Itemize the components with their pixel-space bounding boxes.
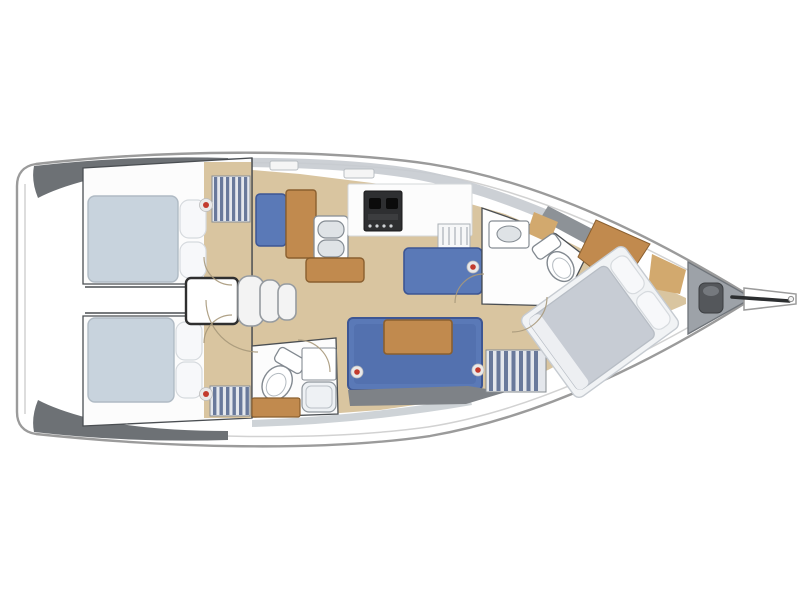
deck-hatch-1 <box>270 161 298 170</box>
aft-cabin-port <box>83 158 252 284</box>
hatch-marker <box>200 388 213 401</box>
galley-island <box>306 258 364 282</box>
bowsprit-tip <box>788 296 793 301</box>
yacht-floor-plan <box>0 0 800 600</box>
aft-cabin-starboard-mattress <box>88 318 174 402</box>
aft-cabin-starboard <box>83 316 252 426</box>
hatch-marker <box>200 199 213 212</box>
deck-hatch-2 <box>344 169 374 178</box>
chart-table <box>286 190 316 258</box>
hatch-marker <box>467 261 479 273</box>
companionway-steps <box>238 276 296 326</box>
yacht-floor-plan-canvas <box>0 0 800 600</box>
bow <box>688 262 796 334</box>
chart-seat <box>256 194 286 246</box>
dish-rack <box>438 224 470 248</box>
windlass-drum <box>703 286 719 296</box>
aft-cabin-port-mattress <box>88 196 178 282</box>
hatch-marker <box>472 364 484 376</box>
galley-stove <box>364 191 402 231</box>
hatch-marker <box>351 366 363 378</box>
aft-head-cabinet-top <box>302 348 336 380</box>
aft-head-wood-cabinet <box>252 398 300 417</box>
forward-head-sink <box>497 226 521 242</box>
salon-table <box>384 320 452 354</box>
aft-head <box>252 338 338 417</box>
